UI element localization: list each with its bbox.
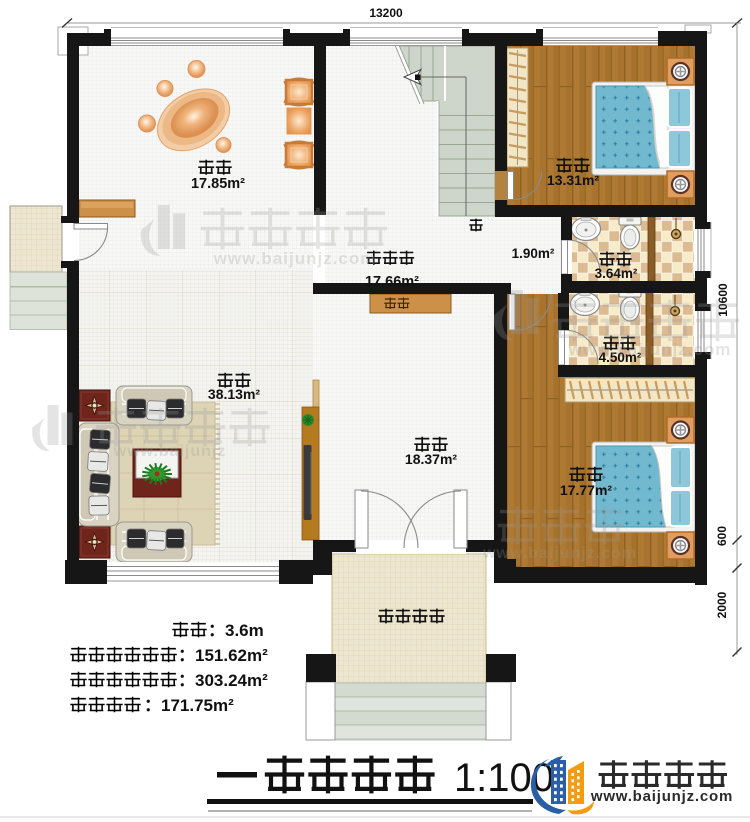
svg-text:18.37m²: 18.37m² <box>405 451 457 467</box>
svg-text:1.90m²: 1.90m² <box>512 246 555 261</box>
svg-text:2000: 2000 <box>715 591 729 618</box>
svg-text:13200: 13200 <box>369 6 403 20</box>
svg-text:：303.24m²: ：303.24m² <box>178 671 268 690</box>
svg-text:38.13m²: 38.13m² <box>208 386 260 402</box>
svg-text:：3.6m: ：3.6m <box>208 621 264 640</box>
svg-text:17.66m²: 17.66m² <box>365 274 419 290</box>
svg-text:1:100: 1:100 <box>454 756 554 800</box>
svg-text:13.31m²: 13.31m² <box>547 172 599 188</box>
svg-text:www.baijunjz.com: www.baijunjz.com <box>568 340 732 359</box>
svg-text:www.baijunjz.com: www.baijunjz.com <box>213 249 377 268</box>
svg-text:：171.75m²: ：171.75m² <box>144 696 234 715</box>
svg-text:17.77m²: 17.77m² <box>560 482 612 498</box>
svg-text:600: 600 <box>715 526 729 546</box>
svg-text:www.baijunjz: www.baijunjz <box>113 443 227 460</box>
svg-text:www.baijunjz.com: www.baijunjz.com <box>482 545 637 562</box>
svg-text:17.85m²: 17.85m² <box>191 176 245 192</box>
svg-text:：151.62m²: ：151.62m² <box>178 646 268 665</box>
svg-text:www.baijunjz.com: www.baijunjz.com <box>590 788 733 805</box>
svg-text:3.64m²: 3.64m² <box>595 266 638 281</box>
